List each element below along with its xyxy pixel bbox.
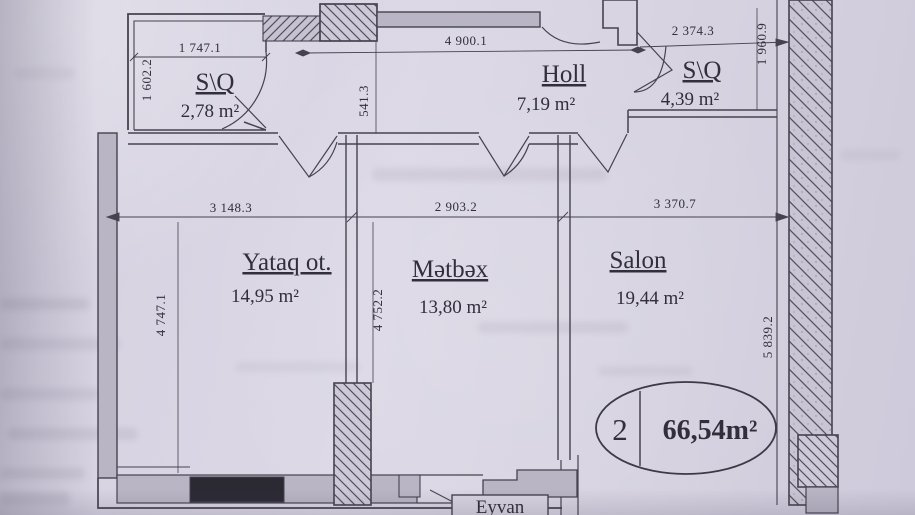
dim-v-left: 4 747.1 xyxy=(153,294,168,337)
dim-top-left: 1 747.1 xyxy=(179,40,222,55)
dim-diamond-mid xyxy=(631,47,645,53)
dimline-top-mid xyxy=(302,50,637,53)
dim-arrow-mid-right xyxy=(776,213,788,221)
dim-mid-center: 2 903.2 xyxy=(435,199,478,214)
photo-edge-shadow-left xyxy=(0,0,96,515)
right-wall-hatched xyxy=(789,0,832,505)
dim-top-right: 2 374.3 xyxy=(672,23,715,38)
floor-plan-drawing: 1 747.1 4 900.1 2 374.3 3 148.3 2 903.2 … xyxy=(0,0,915,515)
room-label-holl: Holl xyxy=(542,61,587,88)
wall-hall-top-bar xyxy=(377,12,540,27)
dim-v-left-top: 1 602.2 xyxy=(139,59,154,102)
room-label-salon: Salon xyxy=(610,247,667,274)
dim-v-right-top: 1 960.9 xyxy=(754,23,769,66)
hall-wall-seg1 xyxy=(128,133,278,144)
door-leaf-sq-left xyxy=(235,96,266,128)
left-wall-gray xyxy=(98,133,117,478)
door-chevron-yataq xyxy=(279,136,337,177)
room-label-sq-left: S\Q xyxy=(196,69,235,96)
room-area-sq-left: 2,78 m² xyxy=(181,101,240,122)
room-sq-right-wall xyxy=(628,110,777,133)
dim-v-mid-top: 541.3 xyxy=(356,85,371,117)
photo-edge-shadow-bottom xyxy=(0,489,915,515)
room-label-metbex: Mətbəx xyxy=(412,256,489,283)
wall-metbex-salon xyxy=(558,135,570,460)
badge-number: 2 xyxy=(612,412,628,447)
wall-hatch-block-a xyxy=(263,16,320,41)
column-hatched-bottom xyxy=(334,383,371,505)
wall-hatch-block-b xyxy=(320,4,377,41)
scanned-floor-plan: 1 747.1 4 900.1 2 374.3 3 148.3 2 903.2 … xyxy=(0,0,915,515)
dim-v-mid: 4 752.2 xyxy=(370,289,385,332)
room-area-yataq: 14,95 m² xyxy=(231,286,299,307)
dim-arrow-top-right xyxy=(776,39,788,46)
door-chevron-sq-right xyxy=(634,32,672,92)
hall-wall-seg2 xyxy=(338,133,479,144)
room-label-yataq: Yataq ot. xyxy=(242,249,331,276)
door-chevron-salon xyxy=(578,134,627,172)
doors xyxy=(222,32,672,177)
dim-mid-left: 3 148.3 xyxy=(210,200,253,215)
total-area-badge: 2 66,54m² xyxy=(596,382,776,474)
entry-door-arc xyxy=(542,27,600,44)
right-wall-bottom-block xyxy=(798,435,838,487)
wall-yataq-metbex xyxy=(346,135,357,383)
dim-top-mid: 4 900.1 xyxy=(445,33,488,48)
room-label-sq-right: S\Q xyxy=(683,57,722,84)
room-area-holl: 7,19 m² xyxy=(517,94,576,115)
entry-column xyxy=(603,0,637,45)
room-area-sq-right: 4,39 m² xyxy=(661,89,720,110)
dim-mid-right: 3 370.7 xyxy=(654,196,697,211)
room-area-salon: 19,44 m² xyxy=(616,288,684,309)
room-area-metbex: 13,80 m² xyxy=(419,297,487,318)
dim-v-right: 5 839.2 xyxy=(760,316,775,359)
dim-diamond-left xyxy=(296,50,310,56)
badge-area: 66,54m² xyxy=(663,415,758,446)
